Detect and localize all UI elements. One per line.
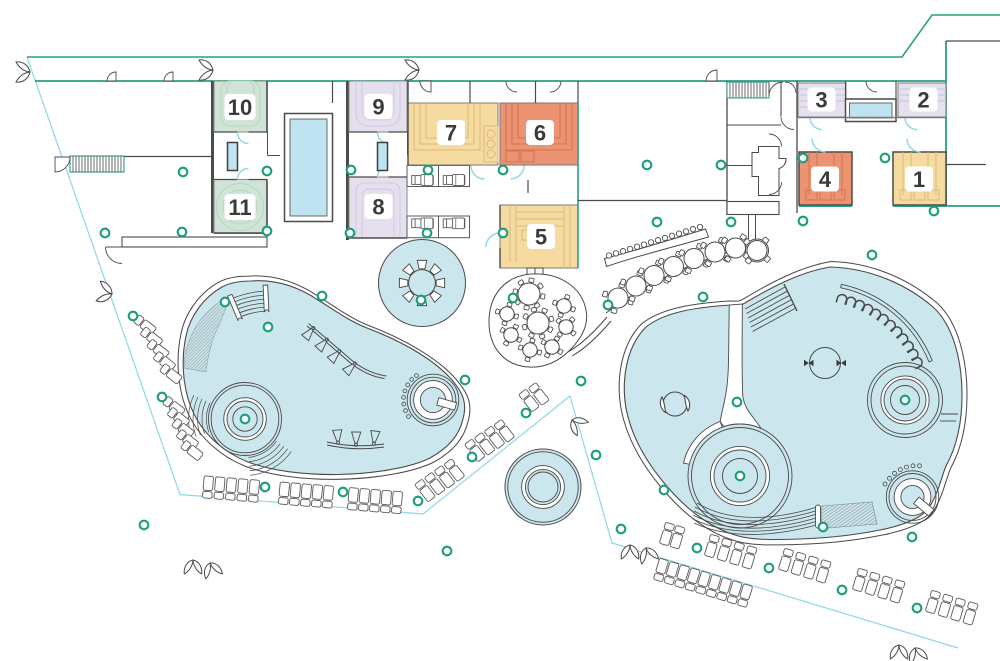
svg-text:7: 7	[445, 121, 457, 146]
svg-text:8: 8	[372, 195, 384, 220]
svg-text:2: 2	[917, 88, 929, 113]
svg-text:11: 11	[228, 195, 251, 220]
svg-text:6: 6	[534, 121, 546, 146]
svg-text:10: 10	[228, 95, 252, 120]
svg-text:3: 3	[815, 88, 827, 113]
svg-text:4: 4	[819, 167, 832, 192]
svg-text:9: 9	[372, 95, 384, 120]
svg-text:1: 1	[913, 167, 925, 192]
svg-text:5: 5	[535, 225, 547, 250]
